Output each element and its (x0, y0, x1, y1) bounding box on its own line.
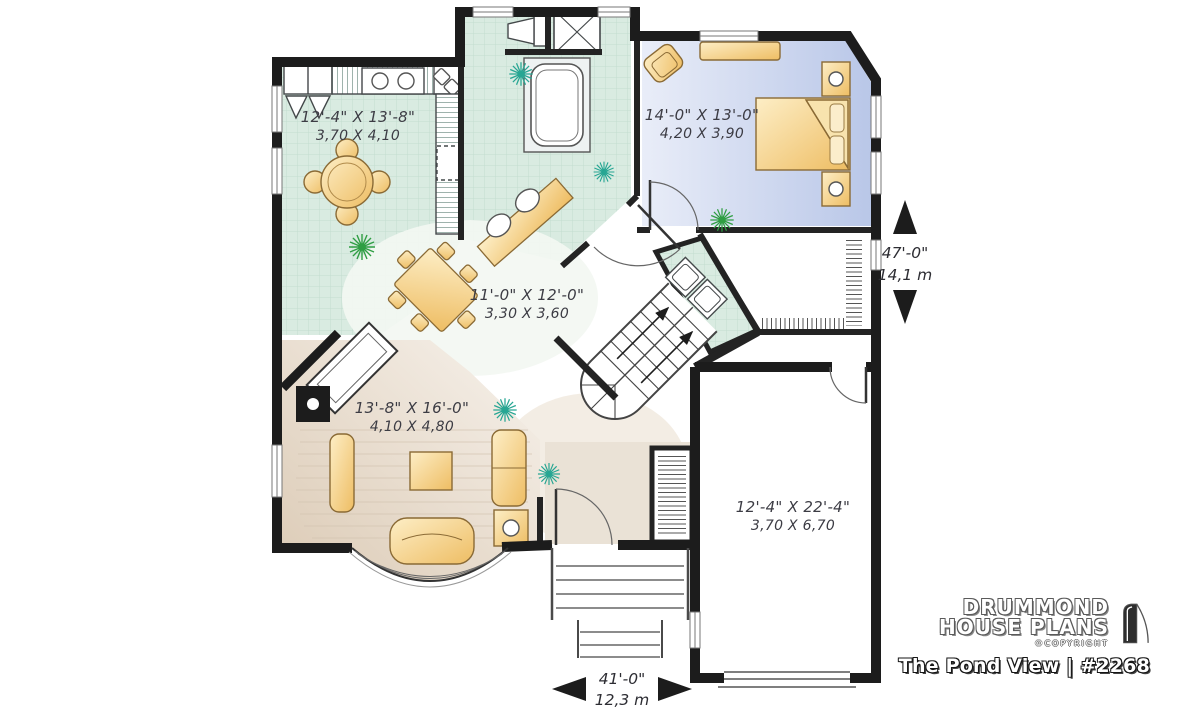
pillow (830, 104, 844, 132)
pillow (830, 136, 844, 164)
window (700, 31, 758, 41)
depth-metric: 14,1 m (878, 266, 933, 284)
bedroom-dimension-imperial: 14'-0" X 13'-0" (645, 106, 759, 124)
arrow-right-icon (658, 677, 692, 701)
window (871, 96, 881, 138)
living-dimension-metric: 4,10 X 4,80 (370, 419, 454, 435)
brand-block: DRUMMOND HOUSE PLANS ©COPYRIGHT The Pond… (899, 598, 1150, 677)
flue (307, 398, 319, 410)
dishwasher (437, 146, 459, 180)
width-dimension: 41'-0" 12,3 m (552, 670, 692, 709)
garage-entry-door (830, 367, 866, 403)
porch-steps (552, 548, 688, 658)
window (272, 86, 282, 132)
lamp (829, 182, 843, 196)
garage-dimension-imperial: 12'-4" X 22'-4" (736, 498, 850, 516)
garage-dimension-metric: 3,70 X 6,70 (751, 518, 835, 534)
sofa-bottom (390, 518, 474, 564)
kitchen-dimension-metric: 3,70 X 4,10 (316, 128, 400, 144)
plan-title: The Pond View | #2268 (899, 655, 1150, 677)
tv (503, 520, 519, 536)
bathtub (524, 58, 590, 152)
nook-table (321, 156, 373, 208)
door-logo-icon (1116, 598, 1150, 648)
dining-dimension-metric: 3,30 X 3,60 (485, 306, 569, 322)
cooktop (362, 68, 424, 94)
window (871, 152, 881, 194)
brand-name: DRUMMOND HOUSE PLANS ©COPYRIGHT (939, 598, 1109, 648)
bedroom-dimension-metric: 4,20 X 3,90 (660, 126, 744, 142)
closet-rod (846, 238, 862, 326)
depth-dimension: 47'-0" 14,1 m (878, 200, 933, 324)
living-dimension-imperial: 13'-8" X 16'-0" (355, 399, 469, 417)
walkin-closet (760, 238, 862, 332)
coffee-table (410, 452, 452, 490)
window (272, 445, 282, 497)
closet-rod (658, 455, 686, 535)
width-imperial: 41'-0" (599, 670, 646, 688)
dining-dimension-imperial: 11'-0" X 12'-0" (470, 286, 584, 304)
sofa-left (330, 434, 354, 512)
window (598, 7, 630, 17)
arrow-up-icon (893, 200, 917, 234)
arrow-left-icon (552, 677, 586, 701)
window (473, 7, 513, 17)
lamp (829, 72, 843, 86)
foyer-closet (652, 448, 692, 542)
window (272, 148, 282, 194)
kitchen-dimension-imperial: 12'-4" X 13'-8" (301, 108, 415, 126)
garage-door (718, 672, 856, 687)
depth-imperial: 47'-0" (882, 244, 929, 262)
arrow-down-icon (893, 290, 917, 324)
dresser (700, 42, 780, 60)
burner (372, 73, 388, 89)
window (690, 612, 700, 648)
width-metric: 12,3 m (595, 691, 650, 709)
brand-line2: HOUSE PLANS (939, 618, 1109, 638)
burner (398, 73, 414, 89)
copyright-label: ©COPYRIGHT (939, 639, 1109, 648)
floor-plan-page: 12'-4" X 13'-8" 3,70 X 4,10 14'-0" X 13'… (0, 0, 1200, 711)
